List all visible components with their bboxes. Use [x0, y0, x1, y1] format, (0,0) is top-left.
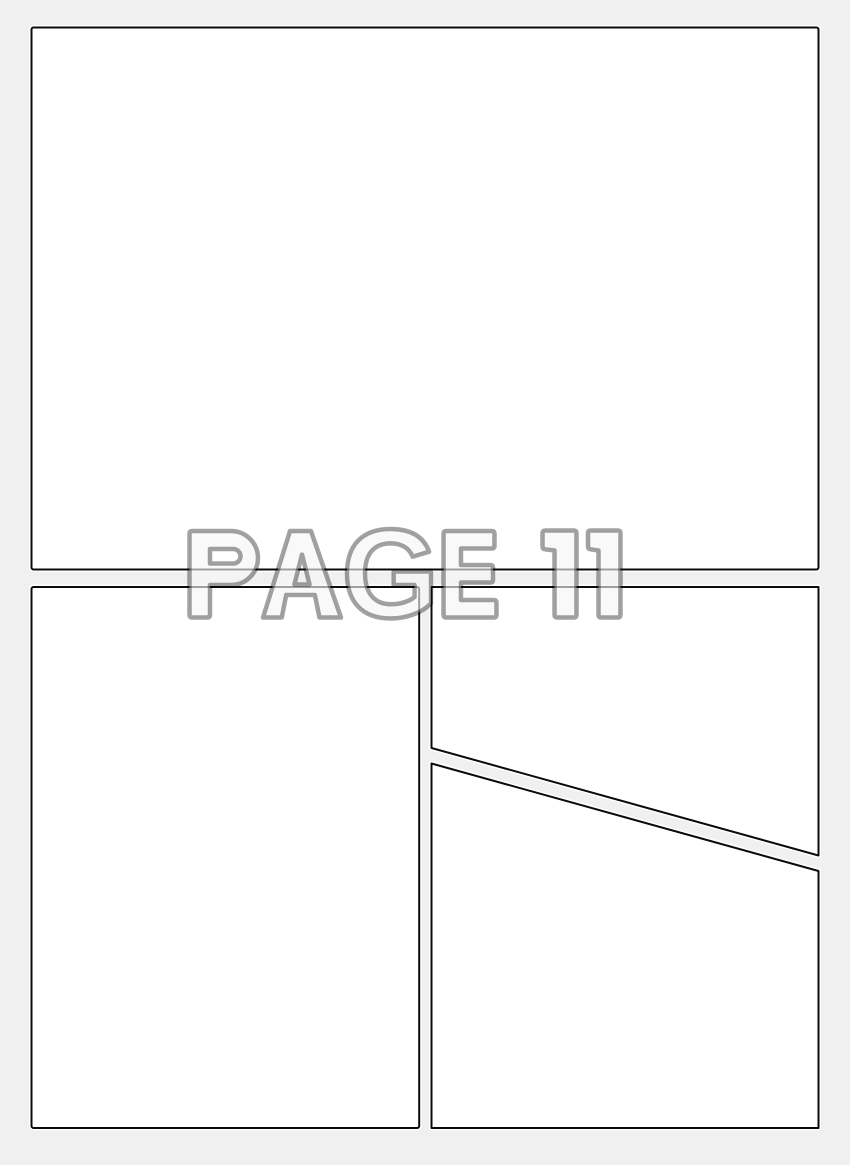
svg-text:G: G	[342, 504, 439, 645]
